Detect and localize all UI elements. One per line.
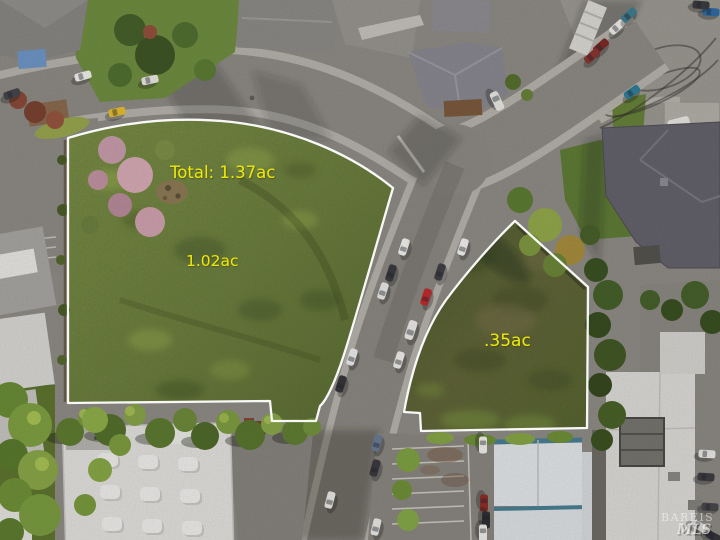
watermark-suffix: MLS [676,522,711,538]
aerial-photo: Total: 1.37ac 1.02ac .35ac BAREIS MLS ML… [0,0,720,540]
film-grain [0,0,720,540]
label-parcel-main-acreage: 1.02ac [186,252,239,270]
label-total-acreage: Total: 1.37ac [169,163,275,182]
label-parcel-secondary-acreage: .35ac [484,331,531,351]
aerial-scene: Total: 1.37ac 1.02ac .35ac BAREIS MLS ML… [0,0,720,540]
